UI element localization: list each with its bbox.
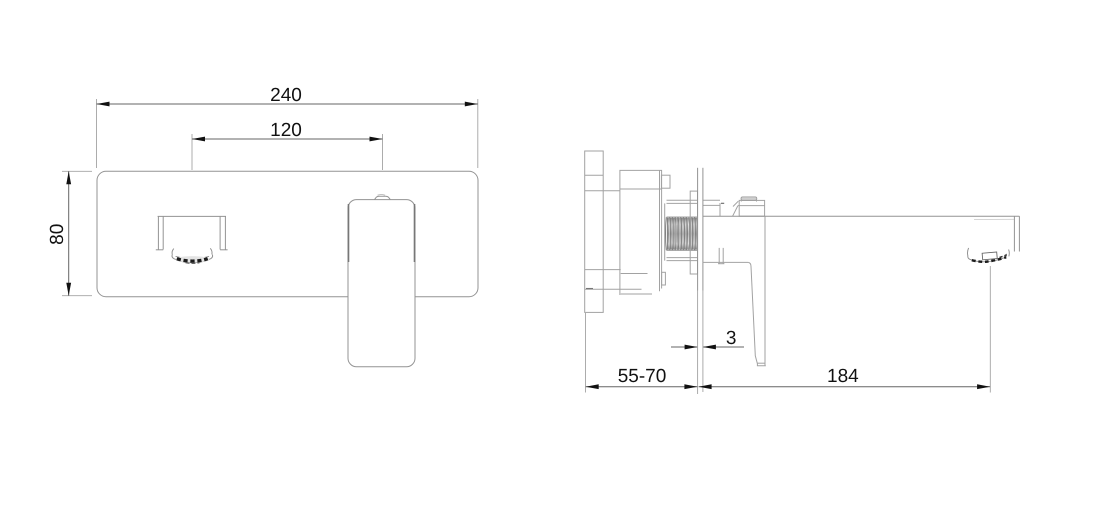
svg-text:184: 184 — [827, 366, 859, 387]
svg-text:240: 240 — [270, 85, 302, 106]
svg-text:55-70: 55-70 — [618, 366, 667, 387]
svg-text:120: 120 — [270, 120, 302, 141]
svg-text:3: 3 — [726, 328, 737, 349]
svg-text:80: 80 — [47, 224, 68, 245]
